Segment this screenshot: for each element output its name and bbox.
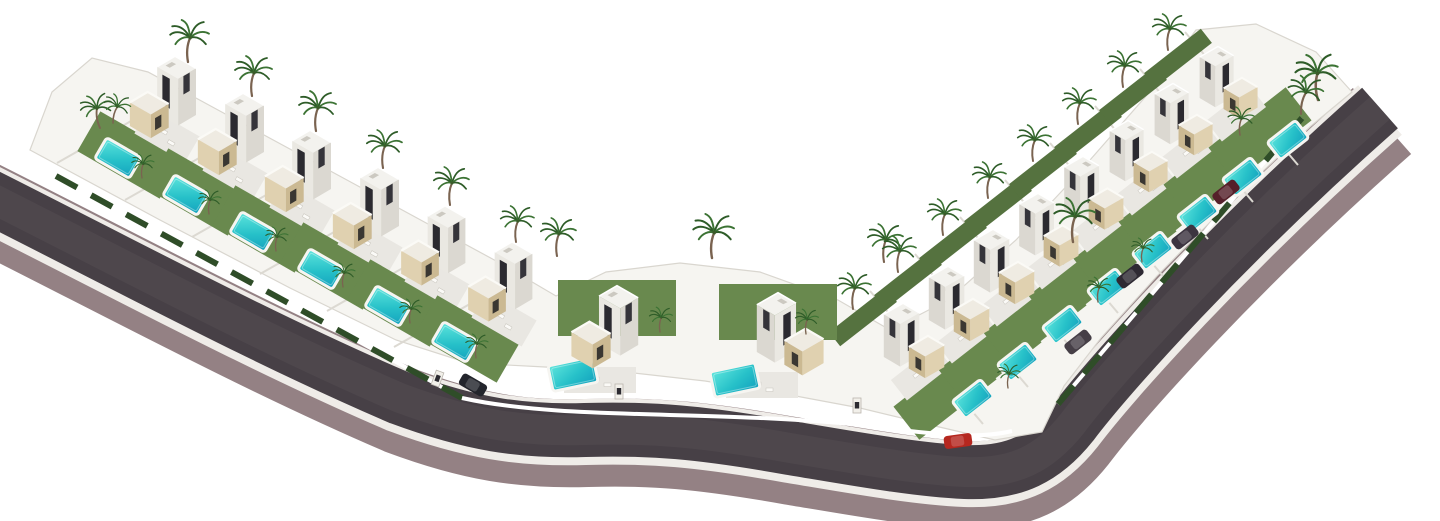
palm-tree: [367, 130, 402, 168]
gate-pillar: [853, 398, 861, 413]
palm-tree: [541, 218, 576, 256]
render-canvas: Aerial 3D render of a V-shaped villa dev…: [0, 0, 1440, 521]
sun-lounger: [604, 383, 611, 387]
gate-pillar: [615, 384, 623, 399]
car-windshield: [950, 435, 964, 447]
palm-tree: [693, 214, 734, 258]
palm-tree: [501, 206, 534, 242]
palm-tree: [235, 56, 272, 96]
palm-tree: [434, 167, 469, 205]
palm-tree: [299, 91, 336, 131]
villa-development-render: Aerial 3D render of a V-shaped villa dev…: [0, 0, 1440, 521]
palm-tree: [170, 20, 209, 62]
sun-lounger: [766, 388, 773, 392]
